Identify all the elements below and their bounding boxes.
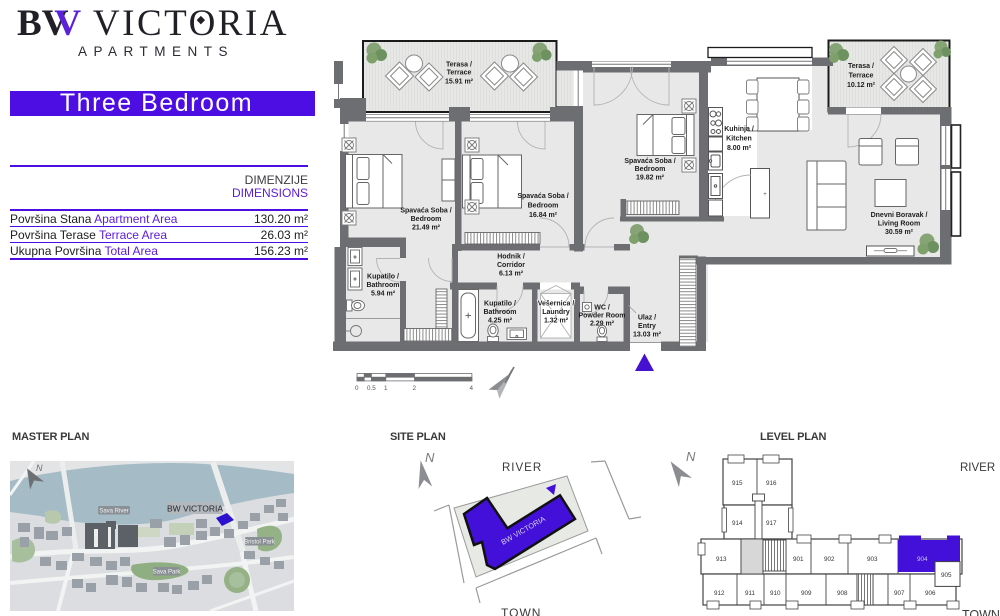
svg-text:Entry: Entry (638, 323, 656, 330)
svg-text:Kupatilo /: Kupatilo / (484, 301, 516, 308)
svg-text:6.13 m²: 6.13 m² (499, 271, 524, 278)
svg-text:8.00 m²: 8.00 m² (727, 145, 752, 152)
svg-text:0.5: 0.5 (367, 385, 376, 392)
svg-text:910: 910 (770, 590, 781, 597)
svg-text:N: N (686, 449, 696, 464)
svg-text:BW VICTORIA: BW VICTORIA (167, 504, 223, 514)
svg-text:908: 908 (837, 590, 848, 597)
svg-text:Laundry: Laundry (542, 309, 570, 316)
svg-text:914: 914 (732, 520, 743, 527)
svg-text:907: 907 (894, 590, 905, 597)
svg-text:Terrace: Terrace (447, 70, 472, 77)
svg-text:TOWN: TOWN (501, 606, 541, 616)
svg-text:Kupatilo /: Kupatilo / (367, 274, 399, 281)
svg-text:Terasa /: Terasa / (848, 63, 874, 70)
svg-text:13.03 m²: 13.03 m² (633, 332, 662, 339)
svg-text:1: 1 (384, 385, 388, 392)
svg-text:Ulaz /: Ulaz / (638, 315, 656, 322)
svg-text:2: 2 (413, 385, 417, 392)
svg-text:Spavaća Soba /: Spavaća Soba / (624, 158, 675, 165)
svg-text:Bedroom: Bedroom (411, 216, 442, 223)
svg-text:903: 903 (867, 556, 878, 563)
svg-text:Spavaća Soba /: Spavaća Soba / (517, 193, 568, 200)
svg-text:904: 904 (917, 556, 928, 563)
svg-text:Sava Park: Sava Park (153, 570, 182, 576)
svg-text:902: 902 (824, 556, 835, 563)
svg-text:913: 913 (716, 556, 727, 563)
svg-text:Dnevni Boravak /: Dnevni Boravak / (871, 212, 928, 219)
svg-text:4.25 m²: 4.25 m² (488, 318, 513, 325)
svg-text:906: 906 (925, 590, 936, 597)
svg-text:Bedroom: Bedroom (528, 203, 559, 210)
svg-text:0: 0 (355, 385, 359, 392)
svg-text:21.49 m²: 21.49 m² (412, 225, 441, 232)
svg-text:19.82 m²: 19.82 m² (636, 174, 665, 181)
svg-text:Sava River: Sava River (99, 509, 128, 515)
svg-text:Bathroom: Bathroom (366, 282, 399, 289)
svg-text:Kuhinja /: Kuhinja / (724, 126, 754, 133)
svg-text:Bathroom: Bathroom (483, 309, 516, 316)
svg-text:Powder Room: Powder Room (578, 313, 625, 320)
svg-text:916: 916 (766, 480, 777, 487)
svg-text:+: + (763, 192, 767, 198)
svg-text:912: 912 (714, 590, 725, 597)
svg-text:911: 911 (745, 590, 756, 597)
svg-text:Bedroom: Bedroom (635, 166, 666, 173)
svg-text:4: 4 (470, 385, 474, 392)
svg-text:Spavaća Soba /: Spavaća Soba / (400, 208, 451, 215)
svg-text:917: 917 (766, 520, 777, 527)
svg-text:5.94 m²: 5.94 m² (371, 291, 396, 298)
svg-text:WC /: WC / (594, 305, 610, 312)
svg-text:905: 905 (941, 572, 952, 579)
svg-text:1.32 m²: 1.32 m² (544, 318, 569, 325)
svg-text:16.84 m²: 16.84 m² (529, 212, 558, 219)
svg-text:901: 901 (793, 556, 804, 563)
svg-text:30.59 m²: 30.59 m² (885, 229, 914, 236)
svg-text:15.91 m²: 15.91 m² (445, 79, 474, 86)
svg-text:10.12 m²: 10.12 m² (847, 82, 876, 89)
svg-text:N: N (36, 463, 43, 473)
svg-text:Vešernica /: Vešernica / (538, 301, 575, 308)
svg-text:RIVER: RIVER (960, 462, 995, 474)
svg-text:Terrace: Terrace (849, 73, 874, 80)
svg-text:RIVER: RIVER (502, 462, 542, 474)
svg-text:TOWN: TOWN (962, 608, 1000, 616)
svg-text:Hodnik /: Hodnik / (497, 254, 525, 261)
svg-text:Terasa /: Terasa / (446, 62, 472, 69)
svg-text:N: N (425, 450, 435, 465)
svg-text:909: 909 (801, 590, 812, 597)
svg-text:Living Room: Living Room (878, 221, 920, 228)
svg-text:Bristol Park: Bristol Park (244, 540, 276, 546)
svg-text:Kitchen: Kitchen (726, 136, 752, 143)
svg-text:2.29 m²: 2.29 m² (590, 321, 615, 328)
svg-text:915: 915 (732, 480, 743, 487)
svg-text:Corridor: Corridor (497, 262, 525, 269)
